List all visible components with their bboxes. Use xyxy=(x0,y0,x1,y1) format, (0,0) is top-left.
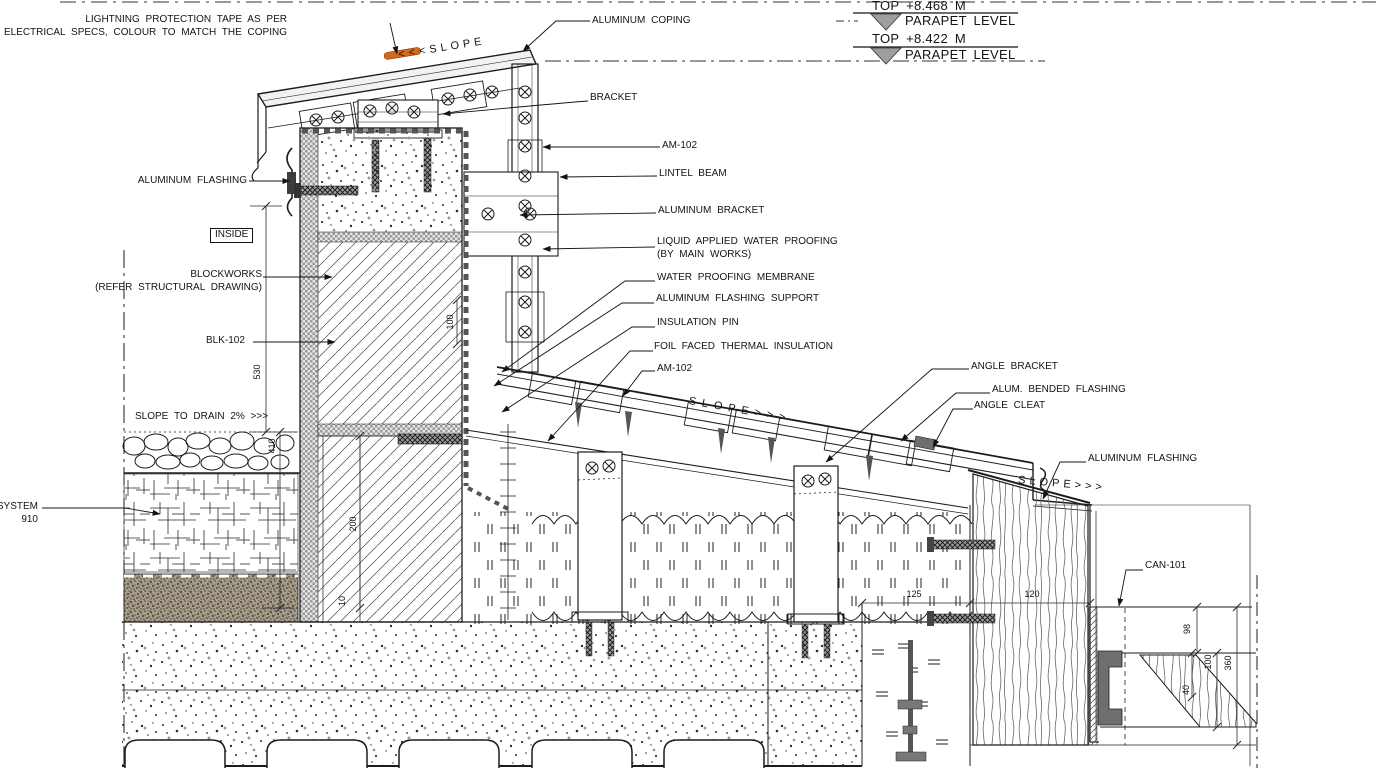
fastener-icon xyxy=(519,326,531,338)
drainage-layer xyxy=(124,474,298,572)
fastener-icon xyxy=(519,296,531,308)
dim-530: 530 xyxy=(252,364,262,379)
callout-blockworks: BLOCKWORKS (REFER STRUCTURAL DRAWING) xyxy=(95,269,262,294)
callout-aluminum-bracket: ALUMINUM BRACKET xyxy=(658,205,764,218)
callout-wp-membrane: WATER PROOFING MEMBRANE xyxy=(657,272,815,285)
dim-120: 120 xyxy=(1024,589,1039,599)
callout-angle-cleat: ANGLE CLEAT xyxy=(974,400,1045,413)
dim-100-canopy: 100 xyxy=(1203,654,1213,669)
callout-angle-bracket: ANGLE BRACKET xyxy=(971,361,1058,374)
fastener-icon xyxy=(519,140,531,152)
callout-flashing-support: ALUMINUM FLASHING SUPPORT xyxy=(656,293,819,306)
metal-channel xyxy=(1098,651,1122,725)
thermal-insulation xyxy=(470,512,968,628)
dim-98: 98 xyxy=(1182,624,1192,634)
dim-200: 200 xyxy=(348,516,358,531)
dim-410: 410 xyxy=(267,438,277,453)
callout-slope-to-drain: SLOPE TO DRAIN 2% >>> xyxy=(135,411,268,424)
callout-system: SYSTEM 910 xyxy=(0,501,38,526)
inside-tag: INSIDE xyxy=(210,228,253,243)
callout-bended-flashing: ALUM. BENDED FLASHING xyxy=(992,384,1126,397)
callout-lightning-tape: LIGHTNING PROTECTION TAPE AS PER ELECTRI… xyxy=(4,14,287,39)
parapet-level-2-label: PARAPET LEVEL xyxy=(905,47,1015,63)
deck-line xyxy=(466,430,968,508)
fastener-icon xyxy=(519,266,531,278)
callout-am-102-upper: AM-102 xyxy=(662,140,697,153)
parapet-level-1-label: PARAPET LEVEL xyxy=(905,13,1015,29)
callout-aluminum-flashing-right: ALUMINUM FLASHING xyxy=(1088,453,1197,466)
threaded-rod xyxy=(933,540,995,549)
callout-insulation-pin: INSULATION PIN xyxy=(657,317,739,330)
paver xyxy=(125,740,764,768)
fastener-icon xyxy=(332,111,344,123)
protection-board xyxy=(124,574,298,622)
detail-drawing xyxy=(0,0,1376,768)
angle-cleat-shape xyxy=(914,436,936,450)
dim-360: 360 xyxy=(1223,655,1233,670)
dim-100-wall: 100 xyxy=(445,314,455,329)
parapet-level-2-value: TOP +8.422 M xyxy=(872,31,966,47)
lintel-beam-shape xyxy=(464,172,558,256)
fastener-icon xyxy=(519,86,531,98)
insulation-block xyxy=(470,424,972,628)
dim-40: 40 xyxy=(1181,685,1191,695)
joint-strip xyxy=(863,630,969,766)
callout-blk-102: BLK-102 xyxy=(206,335,245,348)
callout-aluminum-flashing-left: ALUMINUM FLASHING xyxy=(138,175,247,188)
threaded-rod xyxy=(398,434,462,444)
callout-can-101: CAN-101 xyxy=(1145,560,1186,573)
dim-125: 125 xyxy=(906,589,921,599)
threaded-rod xyxy=(300,186,358,195)
drawing-canvas: TOP +8.468 M PARAPET LEVEL TOP +8.422 M … xyxy=(0,0,1376,768)
callout-liquid-applied-wp: LIQUID APPLIED WATER PROOFING (BY MAIN W… xyxy=(657,236,838,261)
canopy-wedge xyxy=(1140,655,1256,727)
concrete-core xyxy=(318,130,462,240)
callout-lintel-beam: LINTEL BEAM xyxy=(659,168,727,181)
dim-10: 10 xyxy=(337,596,347,606)
callout-bracket: BRACKET xyxy=(590,92,637,105)
anchor-rod xyxy=(908,640,913,758)
callout-foil-insulation: FOIL FACED THERMAL INSULATION xyxy=(654,341,833,354)
callout-am-102-lower: AM-102 xyxy=(657,363,692,376)
callout-aluminum-coping: ALUMINUM COPING xyxy=(592,15,691,28)
threaded-rod xyxy=(933,614,995,623)
fastener-icon xyxy=(519,112,531,124)
